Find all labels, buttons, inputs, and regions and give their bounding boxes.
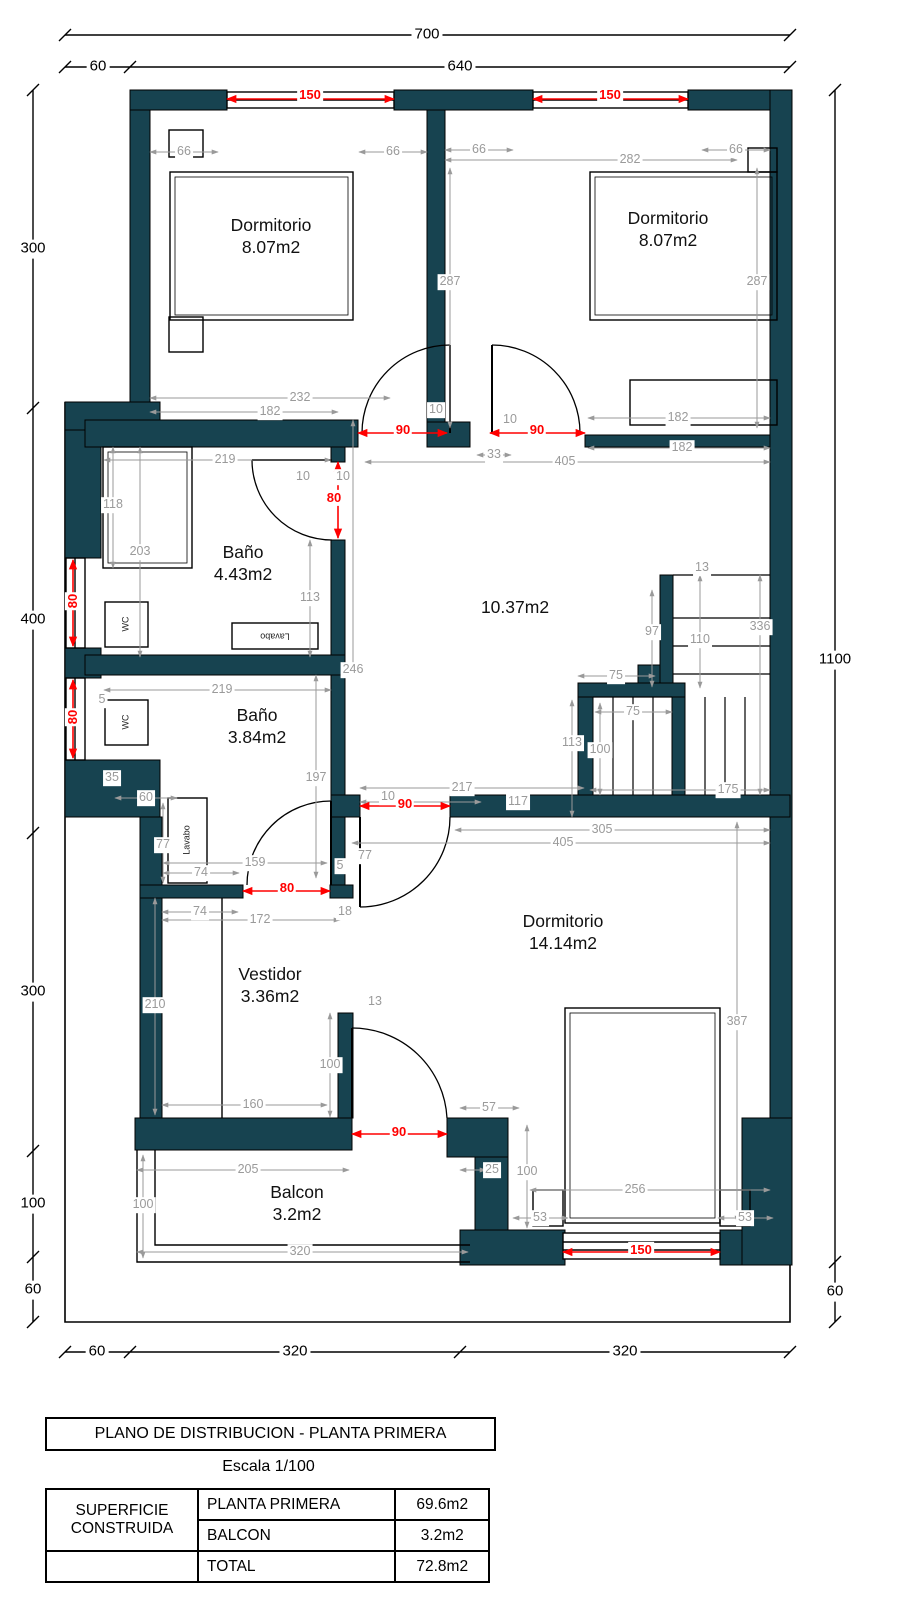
row-value: 3.2m2 [395, 1520, 489, 1551]
dimension-label: 53 [736, 1210, 754, 1226]
dimension-label: 405 [551, 835, 576, 851]
dimension-label: 10 [501, 412, 519, 428]
door-balcony [352, 1028, 447, 1118]
dimension-label: 100 [515, 1164, 540, 1180]
floor-plan-page: 7006064030040030010060110060603203201501… [0, 0, 898, 1620]
overall-dimension: 300 [17, 240, 48, 259]
fixture-label: WC [120, 715, 131, 730]
door-window-dimension: 150 [628, 1242, 654, 1258]
room-label: 10.37m2 [481, 597, 549, 619]
fixture-label: WC [120, 617, 131, 632]
room-label: Dormitorio 8.07m2 [231, 215, 312, 259]
dimension-label: 100 [131, 1197, 156, 1213]
fixture-label: Lavabo [260, 630, 290, 641]
dimension-label: 405 [553, 454, 578, 470]
dimension-label: 232 [288, 390, 313, 406]
row-name: TOTAL [198, 1551, 395, 1582]
dimension-label: 336 [748, 619, 773, 635]
dimension-label: 77 [154, 837, 172, 853]
door-window-dimension: 90 [394, 422, 412, 438]
dimension-label: 182 [670, 440, 695, 456]
door-bath-2 [247, 801, 331, 885]
fixture-label: Lavabo [181, 825, 192, 855]
overall-dimension: 100 [17, 1195, 48, 1214]
dimension-label: 256 [623, 1182, 648, 1198]
room-label: Dormitorio 14.14m2 [523, 911, 604, 955]
plan-title: PLANO DE DISTRIBUCION - PLANTA PRIMERA [45, 1417, 496, 1451]
dimension-label: 113 [560, 735, 584, 751]
dimension-label: 320 [288, 1244, 313, 1260]
overall-dimension: 700 [411, 26, 442, 45]
row-name: BALCON [198, 1520, 395, 1551]
dimension-label: 5 [97, 692, 108, 708]
dimension-label: 113 [298, 590, 322, 606]
overall-dimension: 1100 [816, 651, 854, 670]
dimension-label: 10 [294, 469, 312, 485]
dimension-label: 160 [241, 1097, 266, 1113]
dimension-label: 53 [531, 1210, 549, 1226]
dimension-label: 75 [624, 704, 642, 720]
dimension-label: 172 [248, 912, 273, 928]
dimension-label: 305 [590, 822, 615, 838]
dimension-label: 13 [366, 994, 384, 1010]
dimension-label: 25 [483, 1162, 501, 1178]
dimension-label: 33 [485, 447, 503, 463]
dimension-label: 10 [427, 402, 445, 418]
dimension-label: 77 [356, 848, 374, 864]
dimension-label: 205 [236, 1162, 261, 1178]
staircase [578, 575, 770, 795]
overall-dimension: 60 [87, 58, 110, 77]
dimension-label: 282 [618, 152, 643, 168]
dimension-label: 246 [341, 662, 366, 678]
dimension-label: 387 [725, 1014, 750, 1030]
room-label: Dormitorio 8.07m2 [628, 208, 709, 252]
overall-dimension: 320 [609, 1343, 640, 1362]
dimension-label: 60 [137, 790, 155, 806]
door-window-dimension: 90 [528, 422, 546, 438]
table-header-cell [46, 1551, 198, 1582]
room-label: Baño 4.43m2 [214, 542, 272, 586]
dimension-label: 18 [336, 904, 354, 920]
dimension-label: 197 [304, 770, 329, 786]
dimension-label: 66 [175, 144, 193, 160]
dimension-label: 74 [192, 865, 210, 881]
dimension-label: 100 [318, 1057, 343, 1073]
dimension-label: 203 [128, 544, 153, 560]
door-window-dimension: 80 [65, 708, 81, 726]
dimension-label: 13 [693, 560, 711, 576]
dimension-label: 175 [716, 782, 741, 798]
dimension-label: 74 [191, 904, 209, 920]
door-window-dimension: 90 [396, 796, 414, 812]
dimension-label: 57 [480, 1100, 498, 1116]
door-window-dimension: 80 [278, 880, 296, 896]
table-row: TOTAL 72.8m2 [46, 1551, 489, 1582]
dimension-label: 100 [588, 742, 613, 758]
table-header-cell: SUPERFICIE CONSTRUIDA [46, 1489, 198, 1551]
floor-plan-drawing [0, 0, 898, 1620]
dimension-label: 10 [334, 469, 352, 485]
dimension-label: 182 [666, 410, 691, 426]
dimension-label: 219 [210, 682, 235, 698]
scale-note: Escala 1/100 [45, 1458, 492, 1476]
dimension-label: 210 [143, 997, 168, 1013]
overall-dimension: 300 [17, 983, 48, 1002]
dimension-label: 287 [745, 274, 770, 290]
door-window-dimension: 90 [390, 1124, 408, 1140]
row-name: PLANTA PRIMERA [198, 1489, 395, 1520]
row-value: 69.6m2 [395, 1489, 489, 1520]
dimension-label: 75 [607, 668, 625, 684]
dimension-label: 118 [101, 497, 125, 513]
overall-dimension: 640 [444, 58, 475, 77]
door-window-dimension: 150 [297, 87, 323, 103]
overall-dimension: 60 [86, 1343, 109, 1362]
dimension-label: 35 [103, 770, 121, 786]
dimension-label: 287 [438, 274, 463, 290]
dimension-label: 219 [213, 452, 238, 468]
door-window-dimension: 80 [325, 490, 343, 506]
dimension-label: 159 [243, 855, 268, 871]
dimension-label: 10 [379, 789, 397, 805]
door-window-dimension: 80 [65, 592, 81, 610]
dimension-label: 66 [470, 142, 488, 158]
dimension-label: 66 [727, 142, 745, 158]
door-window-dimension: 150 [597, 87, 623, 103]
room-label: Balcon 3.2m2 [270, 1182, 324, 1226]
dimension-label: 66 [384, 144, 402, 160]
nightstand [169, 317, 203, 352]
dimension-label: 110 [688, 632, 712, 648]
overall-dimension: 60 [22, 1281, 45, 1300]
room-label: Vestidor 3.36m2 [238, 964, 301, 1008]
dimension-label: 117 [506, 794, 530, 810]
room-label: Baño 3.84m2 [228, 705, 286, 749]
walls [65, 90, 792, 1265]
dimension-label: 5 [335, 858, 346, 874]
overall-dimension: 60 [824, 1283, 847, 1302]
dimension-label: 182 [258, 404, 283, 420]
property-outline [65, 402, 790, 1322]
area-table: SUPERFICIE CONSTRUIDA PLANTA PRIMERA 69.… [45, 1488, 490, 1583]
dimension-label: 217 [450, 780, 475, 796]
door-bath-1 [252, 460, 332, 540]
overall-dimension: 400 [17, 611, 48, 630]
dimension-label: 97 [643, 624, 661, 640]
table-row: SUPERFICIE CONSTRUIDA PLANTA PRIMERA 69.… [46, 1489, 489, 1520]
row-value: 72.8m2 [395, 1551, 489, 1582]
overall-dimension: 320 [279, 1343, 310, 1362]
